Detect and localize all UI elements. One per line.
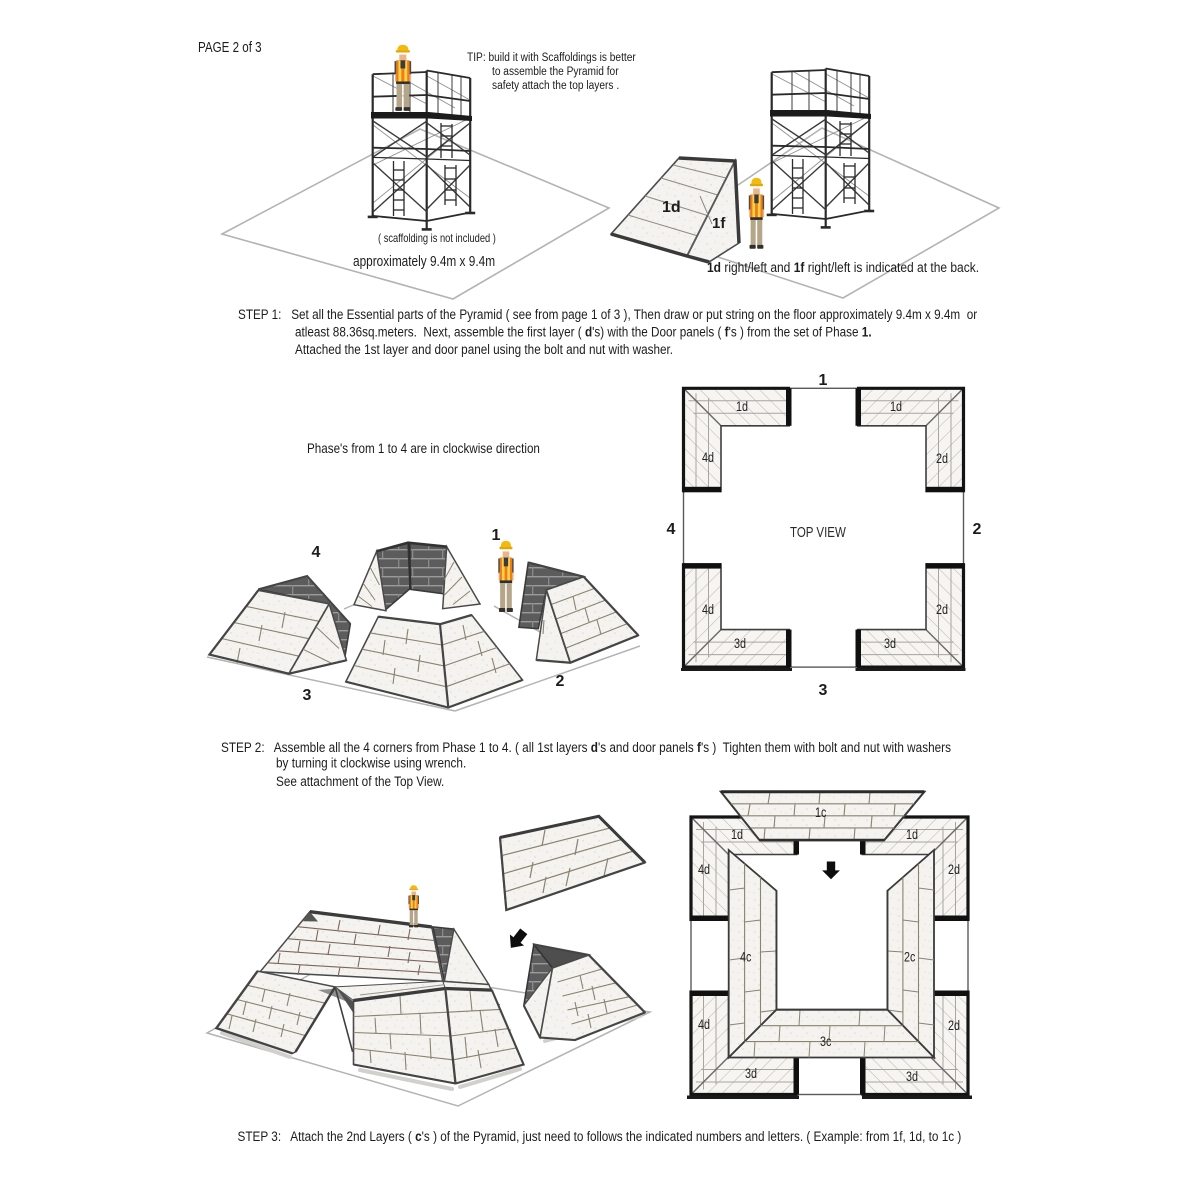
svg-text:4d: 4d	[698, 862, 710, 877]
svg-text:TOP VIEW: TOP VIEW	[790, 524, 846, 541]
svg-text:1d: 1d	[662, 199, 681, 216]
svg-text:4d: 4d	[698, 1017, 710, 1032]
svg-text:4d: 4d	[702, 602, 714, 617]
svg-text:1d: 1d	[890, 399, 902, 414]
svg-text:3d: 3d	[884, 636, 896, 651]
svg-text:2: 2	[556, 673, 565, 690]
svg-text:1: 1	[492, 527, 501, 544]
svg-text:safety attach the top layers .: safety attach the top layers .	[492, 79, 619, 92]
svg-text:2d: 2d	[936, 451, 948, 466]
svg-text:2: 2	[973, 521, 982, 538]
svg-text:STEP 3: Attach the 2nd Layer: STEP 3: Attach the 2nd Layers ( c's ) of…	[238, 1128, 962, 1144]
svg-text:TIP: build it with Scaffolding: TIP: build it with Scaffoldings is bette…	[467, 51, 636, 64]
svg-text:1f: 1f	[712, 215, 726, 232]
svg-text:by turning it clockwise using: by turning it clockwise using wrench.	[276, 755, 466, 771]
svg-text:to assemble the Pyramid for: to assemble the Pyramid for	[492, 65, 619, 78]
svg-text:4: 4	[667, 521, 676, 538]
svg-text:4c: 4c	[740, 949, 751, 964]
svg-text:See attachment of the Top View: See attachment of the Top View.	[276, 773, 444, 789]
svg-text:3d: 3d	[906, 1069, 918, 1084]
svg-text:STEP 2: Assemble all the 4 c: STEP 2: Assemble all the 4 corners from …	[221, 739, 951, 755]
svg-text:3c: 3c	[820, 1034, 831, 1049]
svg-text:approximately 9.4m x 9.4m: approximately 9.4m x 9.4m	[353, 253, 495, 270]
svg-text:1c: 1c	[815, 805, 826, 820]
svg-text:2d: 2d	[936, 602, 948, 617]
svg-text:( scaffolding is not included: ( scaffolding is not included )	[378, 232, 496, 245]
svg-text:1d right/left and 1f right/lef: 1d right/left and 1f right/left is indic…	[707, 259, 979, 275]
svg-text:4: 4	[312, 544, 321, 561]
svg-text:1: 1	[819, 372, 828, 389]
svg-text:3: 3	[303, 687, 312, 704]
svg-text:atleast 88.36sq.meters. Next,: atleast 88.36sq.meters. Next, assemble t…	[295, 323, 872, 339]
svg-text:Phase's from 1 to 4 are in clo: Phase's from 1 to 4 are in clockwise dir…	[307, 441, 540, 456]
svg-text:2d: 2d	[948, 1018, 960, 1033]
svg-text:1d: 1d	[906, 827, 918, 842]
svg-text:2c: 2c	[904, 949, 915, 964]
svg-text:3d: 3d	[745, 1066, 757, 1081]
svg-text:STEP 1: Set all the Essentia: STEP 1: Set all the Essential parts of t…	[238, 306, 978, 322]
svg-text:1d: 1d	[731, 827, 743, 842]
svg-text:2d: 2d	[948, 862, 960, 877]
svg-text:1d: 1d	[736, 399, 748, 414]
svg-text:3: 3	[819, 682, 828, 699]
svg-text:PAGE 2 of 3: PAGE 2 of 3	[198, 39, 262, 56]
svg-text:3d: 3d	[734, 636, 746, 651]
svg-text:4d: 4d	[702, 450, 714, 465]
svg-text:Attached the 1st layer and doo: Attached the 1st layer and door panel us…	[295, 341, 673, 357]
